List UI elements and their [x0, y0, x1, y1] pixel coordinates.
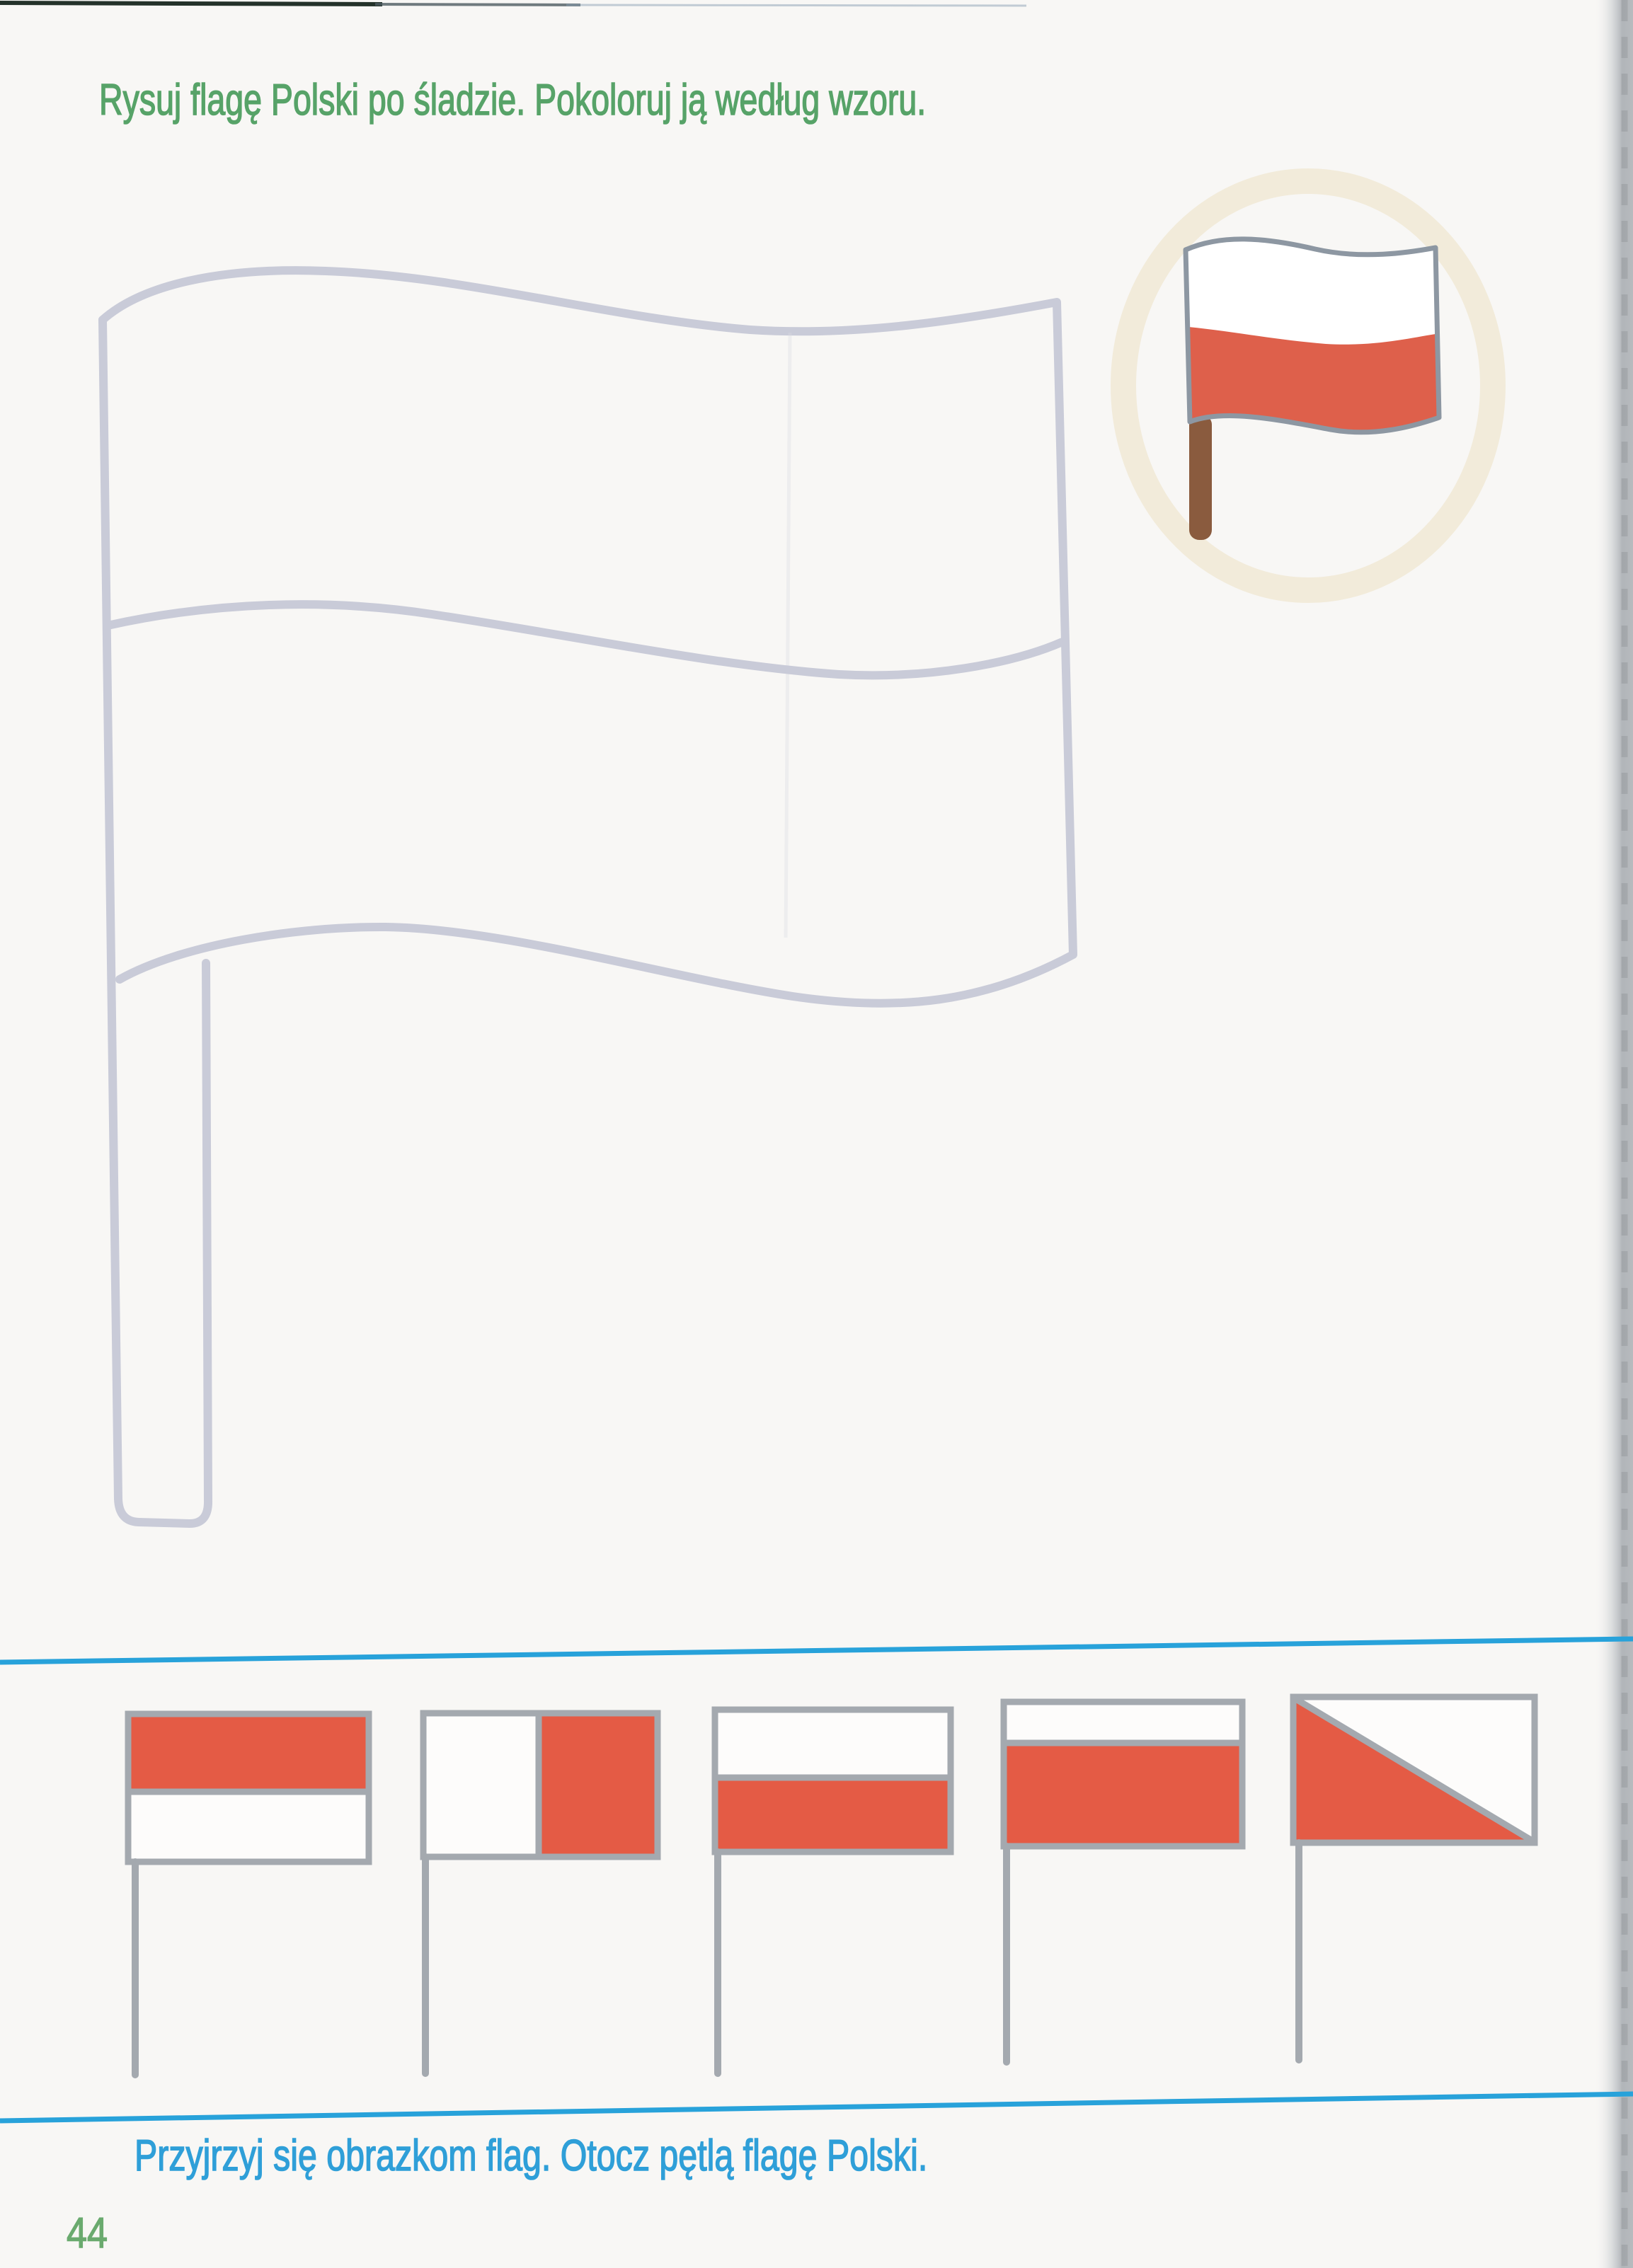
svg-text:Rysuj flagę Polski po śladzie.: Rysuj flagę Polski po śladzie. Pokoloruj…	[99, 74, 926, 124]
svg-text:44: 44	[67, 2209, 108, 2257]
svg-text:Przyjrzyj się obrazkom flag. O: Przyjrzyj się obrazkom flag. Otocz pętlą…	[134, 2131, 927, 2180]
